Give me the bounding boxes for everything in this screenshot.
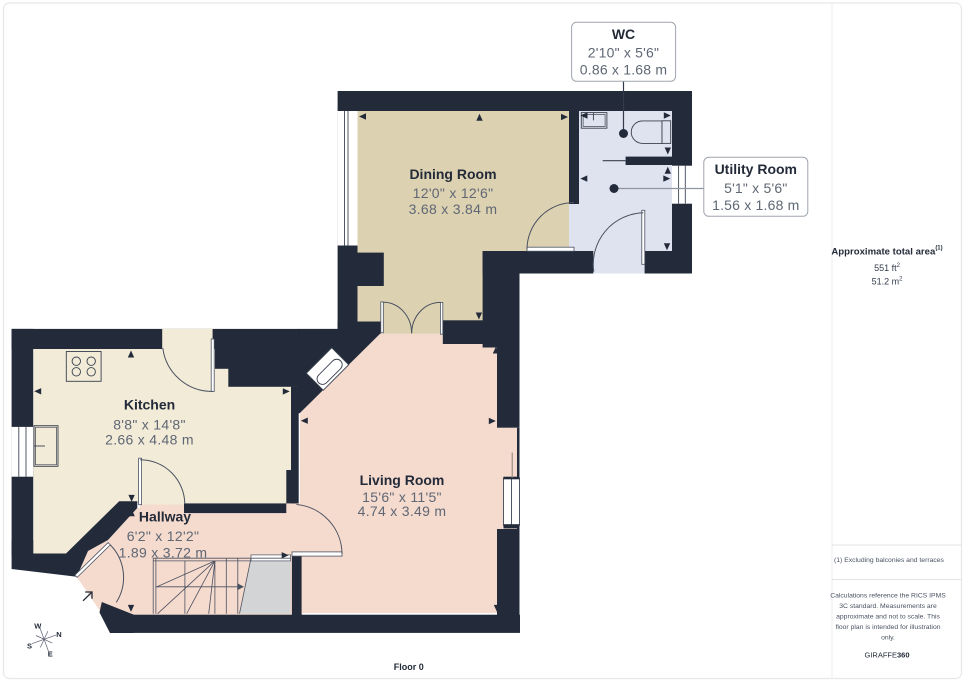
svg-text:only.: only. — [881, 635, 895, 642]
svg-text:floor plan is intended for ill: floor plan is intended for illustration — [835, 624, 940, 631]
svg-text:6'2" x 12'2": 6'2" x 12'2" — [127, 528, 200, 544]
svg-text:N: N — [56, 630, 61, 639]
svg-text:3C standard. Measurements are: 3C standard. Measurements are — [839, 603, 937, 610]
svg-text:(1) Excluding balconies and te: (1) Excluding balconies and terraces — [834, 557, 945, 564]
svg-text:12'0" x 12'6": 12'0" x 12'6" — [413, 185, 494, 201]
svg-text:Dining Room: Dining Room — [409, 166, 496, 182]
svg-text:51.2 m2: 51.2 m2 — [872, 276, 904, 286]
svg-text:0.86 x 1.68 m: 0.86 x 1.68 m — [580, 62, 667, 78]
svg-text:Utility Room: Utility Room — [715, 161, 797, 177]
svg-text:4.74 x 3.49 m: 4.74 x 3.49 m — [358, 503, 447, 519]
svg-text:2'10" x 5'6": 2'10" x 5'6" — [588, 45, 659, 61]
svg-text:GIRAFFE360: GIRAFFE360 — [864, 650, 909, 659]
svg-text:S: S — [27, 642, 32, 651]
svg-text:8'8" x 14'8": 8'8" x 14'8" — [113, 416, 186, 432]
svg-text:1.89 x 3.72 m: 1.89 x 3.72 m — [119, 545, 208, 561]
svg-text:approximate and not to scale.: approximate and not to scale. This — [836, 614, 940, 621]
svg-text:1.56 x 1.68 m: 1.56 x 1.68 m — [712, 197, 799, 213]
svg-text:Kitchen: Kitchen — [124, 397, 175, 413]
svg-text:WC: WC — [612, 26, 635, 42]
svg-text:Hallway: Hallway — [139, 509, 191, 525]
svg-text:E: E — [48, 650, 53, 659]
svg-text:Calculations reference the RIC: Calculations reference the RICS IPMS — [830, 593, 946, 600]
svg-text:W: W — [34, 622, 42, 631]
svg-text:3.68 x 3.84 m: 3.68 x 3.84 m — [409, 201, 498, 217]
svg-text:2.66 x 4.48 m: 2.66 x 4.48 m — [105, 431, 194, 447]
svg-text:Living Room: Living Room — [360, 472, 445, 488]
svg-text:Approximate total area(1): Approximate total area(1) — [831, 246, 942, 258]
svg-text:Floor 0: Floor 0 — [394, 662, 424, 672]
svg-text:5'1" x 5'6": 5'1" x 5'6" — [724, 180, 787, 196]
